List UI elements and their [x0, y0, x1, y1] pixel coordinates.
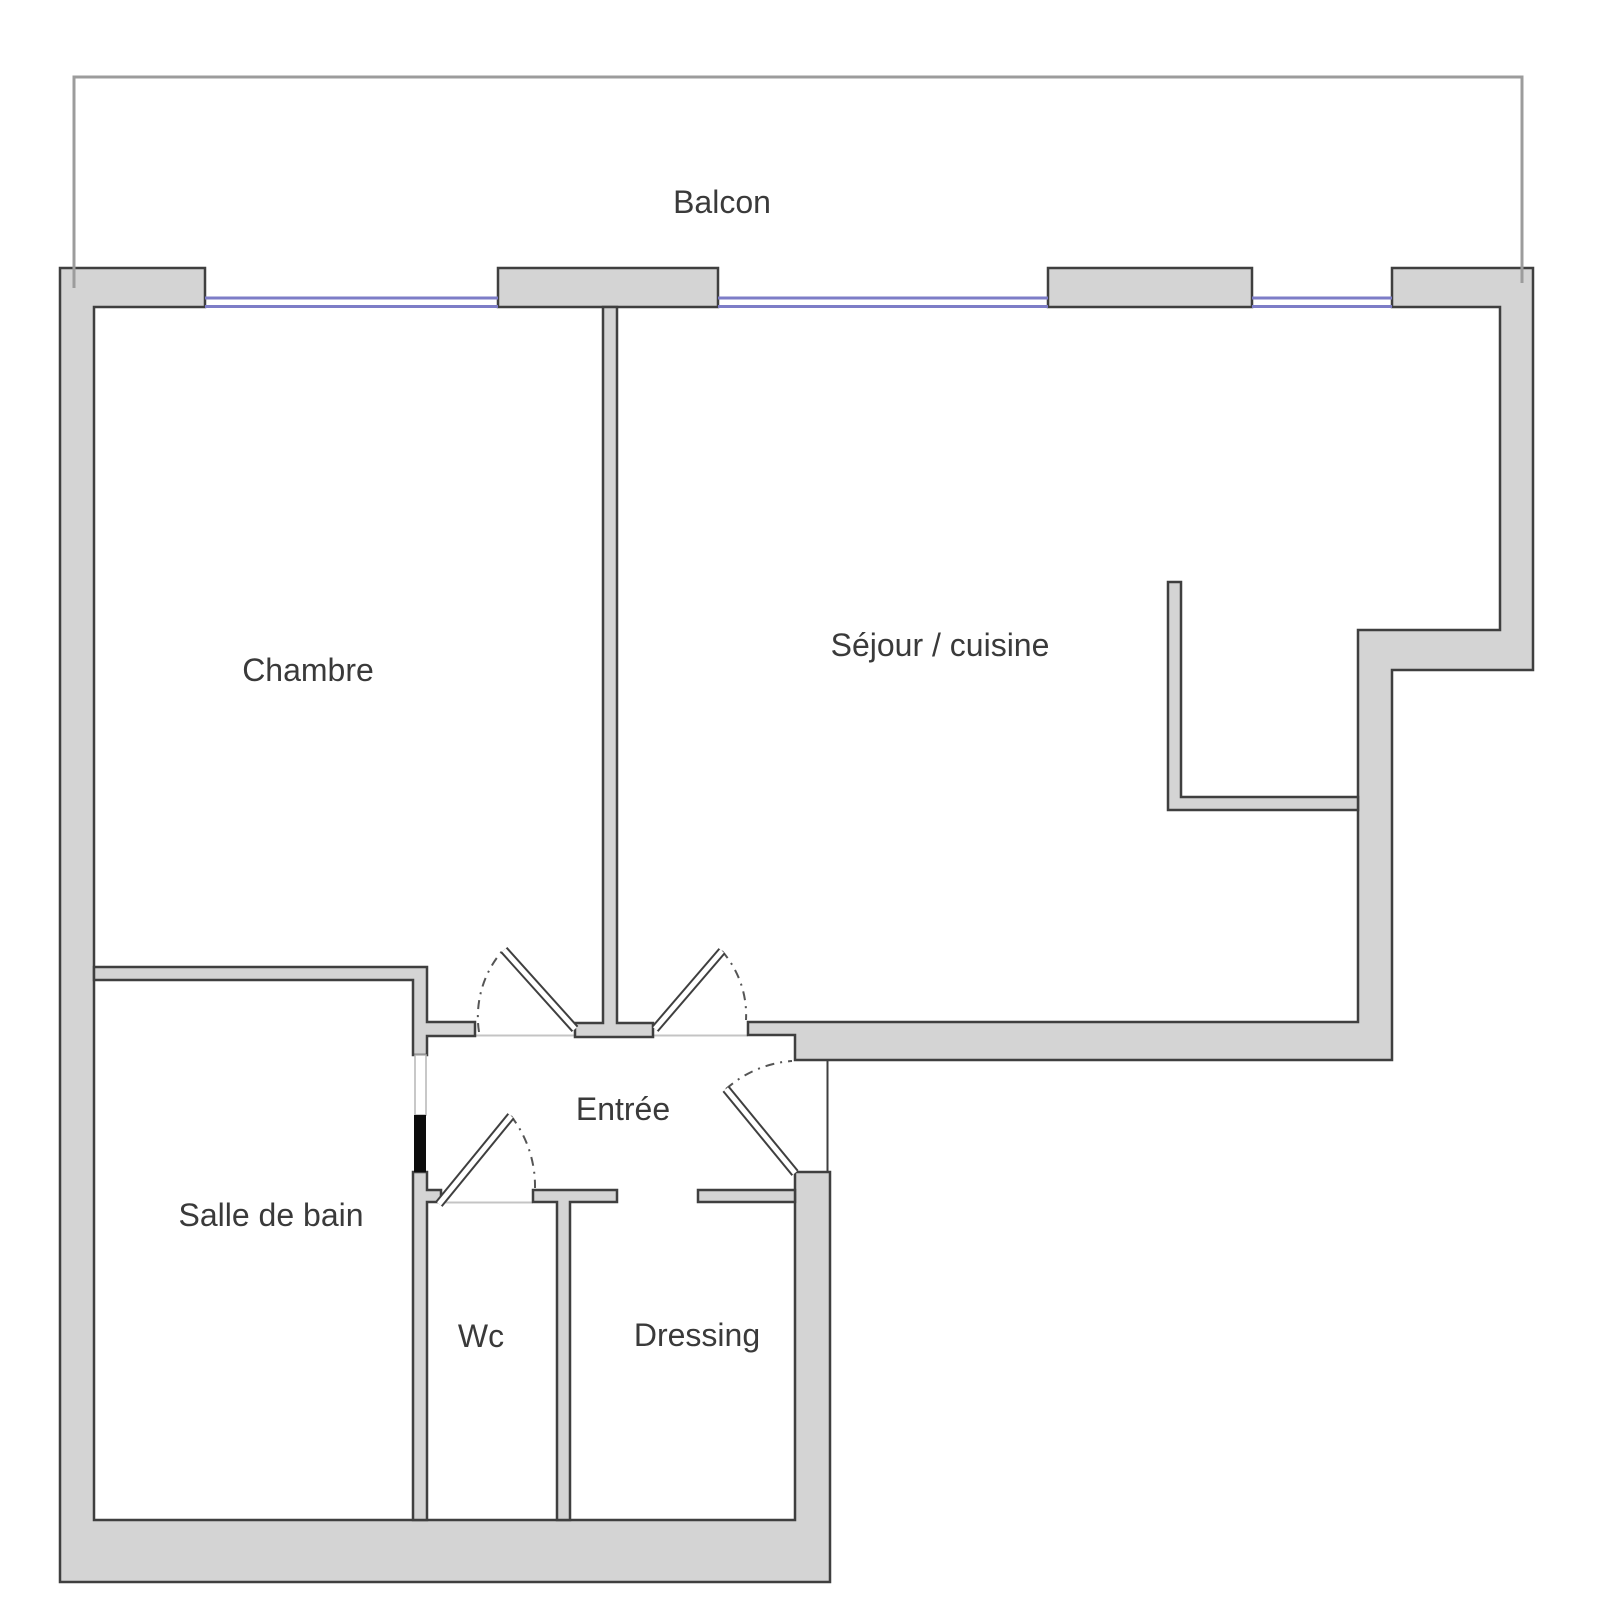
wall-wc-dressing — [533, 1190, 617, 1520]
door-leaf-fill — [439, 1116, 511, 1204]
wall-sdb-wc — [413, 1172, 441, 1520]
pocket-door-group — [414, 1055, 426, 1172]
door-leaf-fill — [726, 1089, 795, 1173]
door-chambre — [478, 949, 575, 1032]
wall-dressing-top — [698, 1190, 795, 1202]
door-swing-arc — [722, 951, 746, 1020]
door-wc — [439, 1116, 535, 1204]
door-swing-arc — [726, 1061, 792, 1089]
room-label-entree: Entrée — [576, 1091, 670, 1127]
room-label-salle-de-bain: Salle de bain — [178, 1197, 363, 1233]
wall-exterior-left-bottom — [60, 268, 830, 1582]
door-entrance — [726, 1061, 795, 1173]
door-sejour — [655, 951, 746, 1029]
pocket-door-gap — [415, 1055, 426, 1115]
door-swing-arc — [478, 949, 504, 1032]
room-label-chambre: Chambre — [242, 652, 374, 688]
wall-top-segment-2 — [498, 268, 718, 307]
wall-kitchen-nook — [1168, 582, 1358, 810]
balcony-outline — [74, 77, 1522, 288]
wall-exterior-right-side — [748, 268, 1533, 1060]
wall-chambre-bottom — [94, 967, 475, 1055]
room-label-dressing: Dressing — [634, 1317, 760, 1353]
pocket-door-panel — [414, 1115, 426, 1172]
door-leaf-fill — [655, 951, 722, 1029]
floorplan-drawing: Balcon Chambre Séjour / cuisine Entrée S… — [0, 0, 1600, 1600]
wall-top-segment-3 — [1048, 268, 1252, 307]
room-label-balcon: Balcon — [673, 184, 771, 220]
room-label-wc: Wc — [458, 1318, 504, 1354]
door-leaf-fill — [504, 950, 575, 1029]
room-label-sejour-cuisine: Séjour / cuisine — [831, 627, 1050, 663]
door-swing-arc — [511, 1116, 535, 1188]
floorplan-canvas: Balcon Chambre Séjour / cuisine Entrée S… — [0, 0, 1600, 1600]
wall-divider-chambre-sejour — [575, 307, 653, 1037]
